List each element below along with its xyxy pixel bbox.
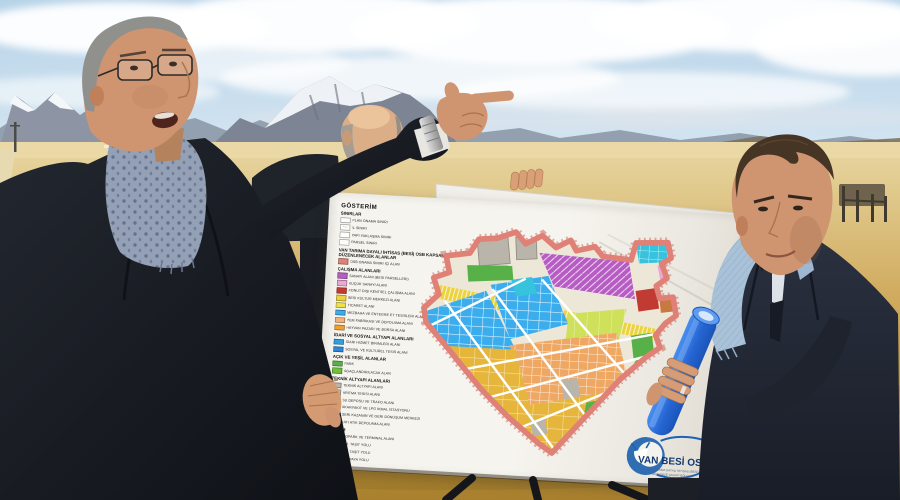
legend-label: SU DEPOSU VE TRAFO ALANI <box>342 398 394 405</box>
legend-label: İL SINIRI <box>352 226 367 231</box>
legend-label: KATI ATIK DEPOLAMA ALANI <box>341 420 390 427</box>
legend-swatch <box>337 280 348 286</box>
legend-swatch <box>332 368 343 374</box>
legend-swatch <box>339 232 350 238</box>
man-middle-ear <box>342 130 352 146</box>
legend-label: TEKNİK ALTYAPI ALANI <box>343 383 383 389</box>
legend-swatch <box>327 448 338 454</box>
legend-swatch <box>336 287 347 293</box>
zoning-plan-board: GÖSTERİM SINIRLARPLAN ONAMA SINIRI–·–İL … <box>315 192 742 491</box>
legend-swatch <box>330 397 341 403</box>
osb-logo: VAN BESİ OSB VAN TARIMA DAYALI İHTİSAS (… <box>614 428 721 488</box>
legend-label: 15 M. TAŞIT YOLU <box>339 449 370 455</box>
legend-swatch <box>339 239 350 245</box>
legend-label: BESİ KÜLTÜR MERKEZİ ALANI <box>348 296 400 303</box>
legend-swatch <box>332 360 343 366</box>
legend-label: 25 M. TAŞIT YOLU <box>340 442 371 448</box>
legend-swatch <box>338 258 349 264</box>
legend-label: 10 M. YAYA YOLU <box>339 457 369 463</box>
legend-swatch <box>337 273 348 279</box>
legend-swatch <box>331 389 342 395</box>
legend-label: OSB ONAMA SINIRI İÇİ ALAN <box>350 260 400 267</box>
legend-swatch: –·– <box>340 224 351 230</box>
legend-label: AĞAÇLANDIRILACAK ALAN <box>344 369 391 376</box>
legend-label: TİCARET ALANI <box>347 304 374 310</box>
legend-label: PARK <box>344 362 354 367</box>
legend-label: SOSYAL VE KÜLTÜREL TESİS ALANI <box>345 347 408 355</box>
legend-label: KÜÇÜK SANAYİ ALANI <box>349 281 387 287</box>
legend-label: PARSEL SINIRI <box>351 241 377 247</box>
legend-swatch <box>329 412 340 418</box>
legend-label: OTOPARK VE TERMİNAL ALANI <box>340 435 394 442</box>
legend-swatch <box>328 433 339 439</box>
legend-swatch <box>335 317 346 323</box>
legend-label: ARITMA TESİSİ ALANI <box>343 391 381 397</box>
legend-swatch <box>335 309 346 315</box>
legend-swatch <box>331 382 342 388</box>
legend-label: YAPI YAKLAŞMA SINIRI <box>351 233 391 239</box>
legend-swatch <box>329 419 340 425</box>
legend-swatch <box>334 339 345 345</box>
legend-swatch <box>336 302 347 308</box>
legend-swatch <box>333 346 344 352</box>
legend-label: PLAN ONAMA SINIRI <box>352 218 388 224</box>
legend-swatch <box>336 295 347 301</box>
legend-swatch <box>327 455 337 461</box>
legend-swatch <box>340 217 351 223</box>
legend-swatch <box>334 324 345 330</box>
legend-label: HAYVAN PAZARI VE BORSA ALANI <box>346 326 405 333</box>
legend-swatch <box>328 441 339 447</box>
legend-swatch <box>330 404 341 410</box>
